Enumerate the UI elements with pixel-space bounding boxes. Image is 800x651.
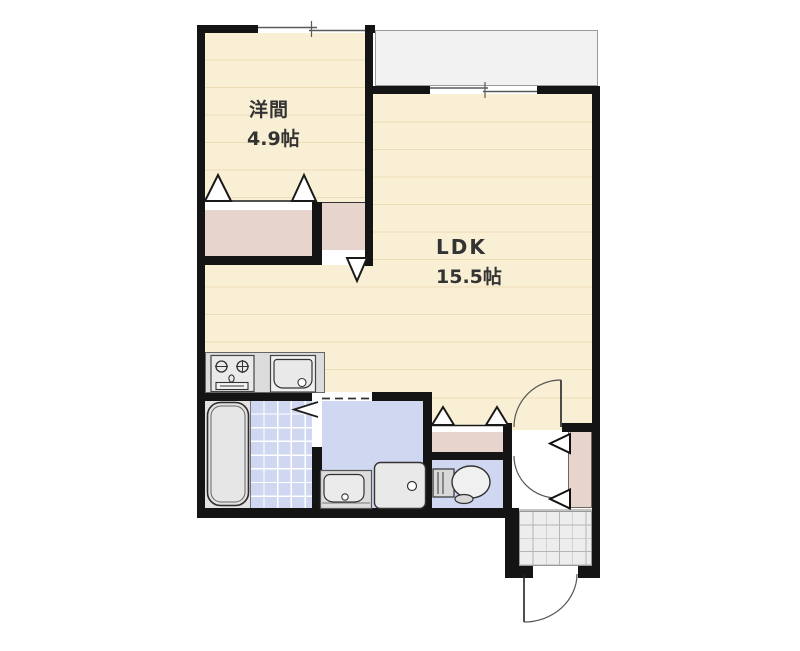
western-room-area-label: 4.9帖 — [247, 124, 300, 151]
closet-left-bifold-icon — [205, 175, 316, 201]
washbasin-icon — [321, 471, 372, 509]
western-room-window-icon — [258, 21, 365, 37]
bathroom-folding-door-icon — [294, 402, 318, 417]
ldk-area-label: 15.5帖 — [436, 262, 502, 289]
bathtub-icon — [208, 403, 249, 506]
lineart-overlay — [0, 0, 800, 651]
closet-toilet-bifold-icon — [432, 407, 508, 426]
washing-machine-pan-icon — [375, 463, 426, 509]
ldk-label: LDK — [436, 235, 487, 259]
entrance-door-icon — [524, 574, 577, 622]
kitchen-sink-icon — [271, 356, 316, 393]
closet-right-door-icon — [347, 258, 367, 281]
toilet-icon — [433, 466, 490, 504]
kitchen-stove-icon — [211, 356, 254, 392]
ldk-hall-door-icon — [514, 380, 561, 427]
western-room-label: 洋間 — [249, 95, 289, 122]
ldk-window-icon — [430, 82, 537, 98]
hall-interior-door-icon — [514, 434, 570, 509]
floorplan-canvas: 洋間 4.9帖 LDK 15.5帖 — [0, 0, 800, 651]
